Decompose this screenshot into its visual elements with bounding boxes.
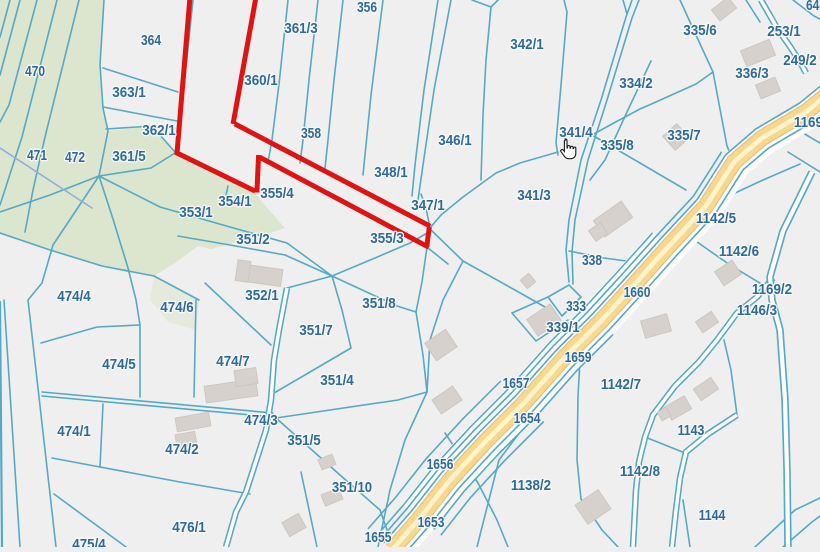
svg-text:1142/5: 1142/5 xyxy=(696,210,736,227)
svg-text:1169/2: 1169/2 xyxy=(752,281,792,298)
svg-text:358: 358 xyxy=(301,125,321,142)
svg-text:348/1: 348/1 xyxy=(374,164,408,181)
svg-text:355/3: 355/3 xyxy=(370,230,404,247)
svg-text:338: 338 xyxy=(582,252,602,269)
svg-text:474/4: 474/4 xyxy=(57,288,91,305)
svg-text:1138/2: 1138/2 xyxy=(511,477,551,494)
svg-text:474/2: 474/2 xyxy=(165,441,199,458)
svg-text:335/6: 335/6 xyxy=(683,22,717,39)
svg-text:356: 356 xyxy=(357,0,377,16)
svg-text:475/4: 475/4 xyxy=(72,536,106,547)
svg-text:342/1: 342/1 xyxy=(510,36,544,53)
svg-text:471: 471 xyxy=(27,147,47,164)
svg-text:346/1: 346/1 xyxy=(438,132,472,149)
svg-text:354/1: 354/1 xyxy=(218,193,252,210)
svg-text:360/1: 360/1 xyxy=(244,72,278,89)
svg-text:474/7: 474/7 xyxy=(216,353,250,370)
svg-text:1659: 1659 xyxy=(565,349,592,366)
svg-text:364: 364 xyxy=(141,32,162,49)
svg-text:474/3: 474/3 xyxy=(244,412,278,429)
svg-text:351/7: 351/7 xyxy=(299,322,333,339)
svg-text:355/4: 355/4 xyxy=(260,185,294,202)
svg-text:476/1: 476/1 xyxy=(172,519,206,536)
svg-text:351/2: 351/2 xyxy=(236,231,270,248)
svg-text:474/1: 474/1 xyxy=(57,423,91,440)
svg-text:1655: 1655 xyxy=(365,529,392,546)
svg-text:341/3: 341/3 xyxy=(517,187,551,204)
svg-text:1142/6: 1142/6 xyxy=(719,243,759,260)
svg-text:249/2: 249/2 xyxy=(783,52,817,69)
svg-text:334/2: 334/2 xyxy=(619,75,653,92)
svg-text:353/1: 353/1 xyxy=(179,204,213,221)
svg-text:1660: 1660 xyxy=(624,284,651,301)
svg-text:361/5: 361/5 xyxy=(112,148,146,165)
svg-text:1657: 1657 xyxy=(503,375,530,392)
svg-text:363/1: 363/1 xyxy=(112,84,146,101)
svg-text:335/8: 335/8 xyxy=(600,137,634,154)
svg-text:339/1: 339/1 xyxy=(546,319,580,336)
svg-text:333: 333 xyxy=(566,298,586,315)
svg-text:362/1: 362/1 xyxy=(142,122,176,139)
svg-text:347/1: 347/1 xyxy=(411,197,445,214)
svg-text:474/6: 474/6 xyxy=(160,299,194,316)
svg-text:351/8: 351/8 xyxy=(362,295,396,312)
svg-text:1144: 1144 xyxy=(699,507,726,524)
svg-text:1142/7: 1142/7 xyxy=(601,376,641,393)
svg-text:351/5: 351/5 xyxy=(287,432,321,449)
svg-text:1169/1: 1169/1 xyxy=(794,114,820,131)
svg-text:472: 472 xyxy=(65,149,85,166)
svg-text:351/4: 351/4 xyxy=(320,372,354,389)
svg-text:335/7: 335/7 xyxy=(667,127,701,144)
svg-text:253/1: 253/1 xyxy=(767,23,801,40)
svg-text:1143: 1143 xyxy=(678,422,705,439)
svg-text:352/1: 352/1 xyxy=(245,287,279,304)
svg-text:1142/8: 1142/8 xyxy=(620,463,660,480)
svg-text:648: 648 xyxy=(806,0,820,14)
svg-text:361/3: 361/3 xyxy=(284,20,318,37)
svg-text:1653: 1653 xyxy=(418,514,445,531)
svg-text:351/10: 351/10 xyxy=(332,479,372,496)
svg-text:1146/3: 1146/3 xyxy=(737,302,777,319)
svg-text:336/3: 336/3 xyxy=(735,65,769,82)
svg-text:474/5: 474/5 xyxy=(102,356,136,373)
svg-text:470: 470 xyxy=(25,63,45,80)
svg-text:1654: 1654 xyxy=(514,410,541,427)
svg-text:1656: 1656 xyxy=(427,456,454,473)
